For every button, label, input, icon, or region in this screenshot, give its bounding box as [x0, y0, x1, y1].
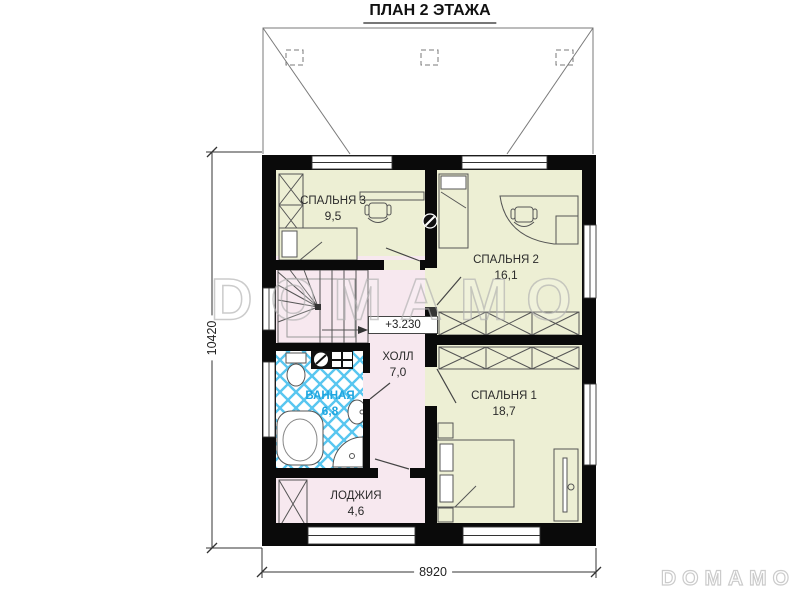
room-label-loggia: ЛОДЖИЯ 4,6 [330, 489, 381, 519]
window-top-left [312, 156, 392, 169]
room-label-bathroom: ВАННАЯ 6,8 [305, 389, 354, 419]
room-name: СПАЛЬНЯ 3 [300, 194, 366, 209]
window-top-right [462, 156, 547, 169]
room-name: СПАЛЬНЯ 1 [471, 389, 537, 404]
washer-and-heater-icon [311, 350, 353, 369]
wall-left [262, 155, 276, 546]
cabinet-icon [279, 480, 307, 528]
nightstand-icon [438, 508, 453, 522]
wall-bathroom-top [276, 343, 370, 351]
room-area: 4,6 [330, 504, 381, 519]
roof-hatch-3 [556, 50, 573, 65]
dimension-width-label: 8920 [414, 565, 452, 579]
room-name: ЛОДЖИЯ [330, 489, 381, 504]
room-name: ВАННАЯ [305, 389, 354, 404]
roof-outline [263, 28, 593, 154]
wall-right [582, 155, 596, 546]
wall-bedroom2-bedroom1 [437, 335, 582, 345]
dresser-mirror-icon [554, 449, 578, 521]
floor-plan-page: ПЛАН 2 ЭТАЖА СПАЛЬНЯ 3 9,5 СПАЛЬНЯ 2 16,… [0, 0, 800, 600]
elevation-marker: +3.230 [368, 316, 438, 334]
room-label-bedroom2: СПАЛЬНЯ 2 16,1 [473, 253, 539, 283]
roof-hatch-1 [286, 50, 303, 65]
toilet-icon [286, 353, 306, 386]
room-area: 7,0 [382, 365, 413, 380]
desk-icon [360, 192, 424, 200]
bed-icon [279, 228, 357, 260]
bathtub-icon [277, 411, 323, 465]
room-area: 16,1 [473, 268, 539, 283]
vent-duct-icon [423, 214, 437, 228]
roof-hatch-2 [421, 50, 438, 65]
wall-bathroom-right [363, 351, 370, 478]
room-name: СПАЛЬНЯ 2 [473, 253, 539, 268]
room-area: 18,7 [471, 404, 537, 419]
window-bottom-bedroom1 [463, 527, 540, 544]
window-right-bedroom2 [584, 225, 596, 298]
page-title: ПЛАН 2 ЭТАЖА [363, 2, 496, 24]
window-bottom-loggia [308, 527, 415, 544]
room-label-hall: ХОЛЛ 7,0 [382, 350, 413, 380]
double-bed-icon [437, 440, 514, 507]
room-label-bedroom1: СПАЛЬНЯ 1 18,7 [471, 389, 537, 419]
room-name: ХОЛЛ [382, 350, 413, 365]
window-left-stairs [263, 288, 275, 330]
bed-icon [439, 174, 468, 248]
loggia-furniture [279, 480, 307, 528]
wardrobe-row-icon [439, 312, 579, 335]
floor-plan-drawing [0, 0, 800, 600]
window-right-bedroom1 [584, 384, 596, 465]
window-left-bathroom [263, 362, 275, 437]
nightstand-icon [438, 423, 453, 438]
dimension-height-label: 10420 [205, 316, 219, 361]
room-label-bedroom3: СПАЛЬНЯ 3 9,5 [300, 194, 366, 224]
room-area: 9,5 [300, 209, 366, 224]
wardrobe-row-icon [439, 347, 579, 369]
room-area: 6,8 [305, 404, 354, 419]
